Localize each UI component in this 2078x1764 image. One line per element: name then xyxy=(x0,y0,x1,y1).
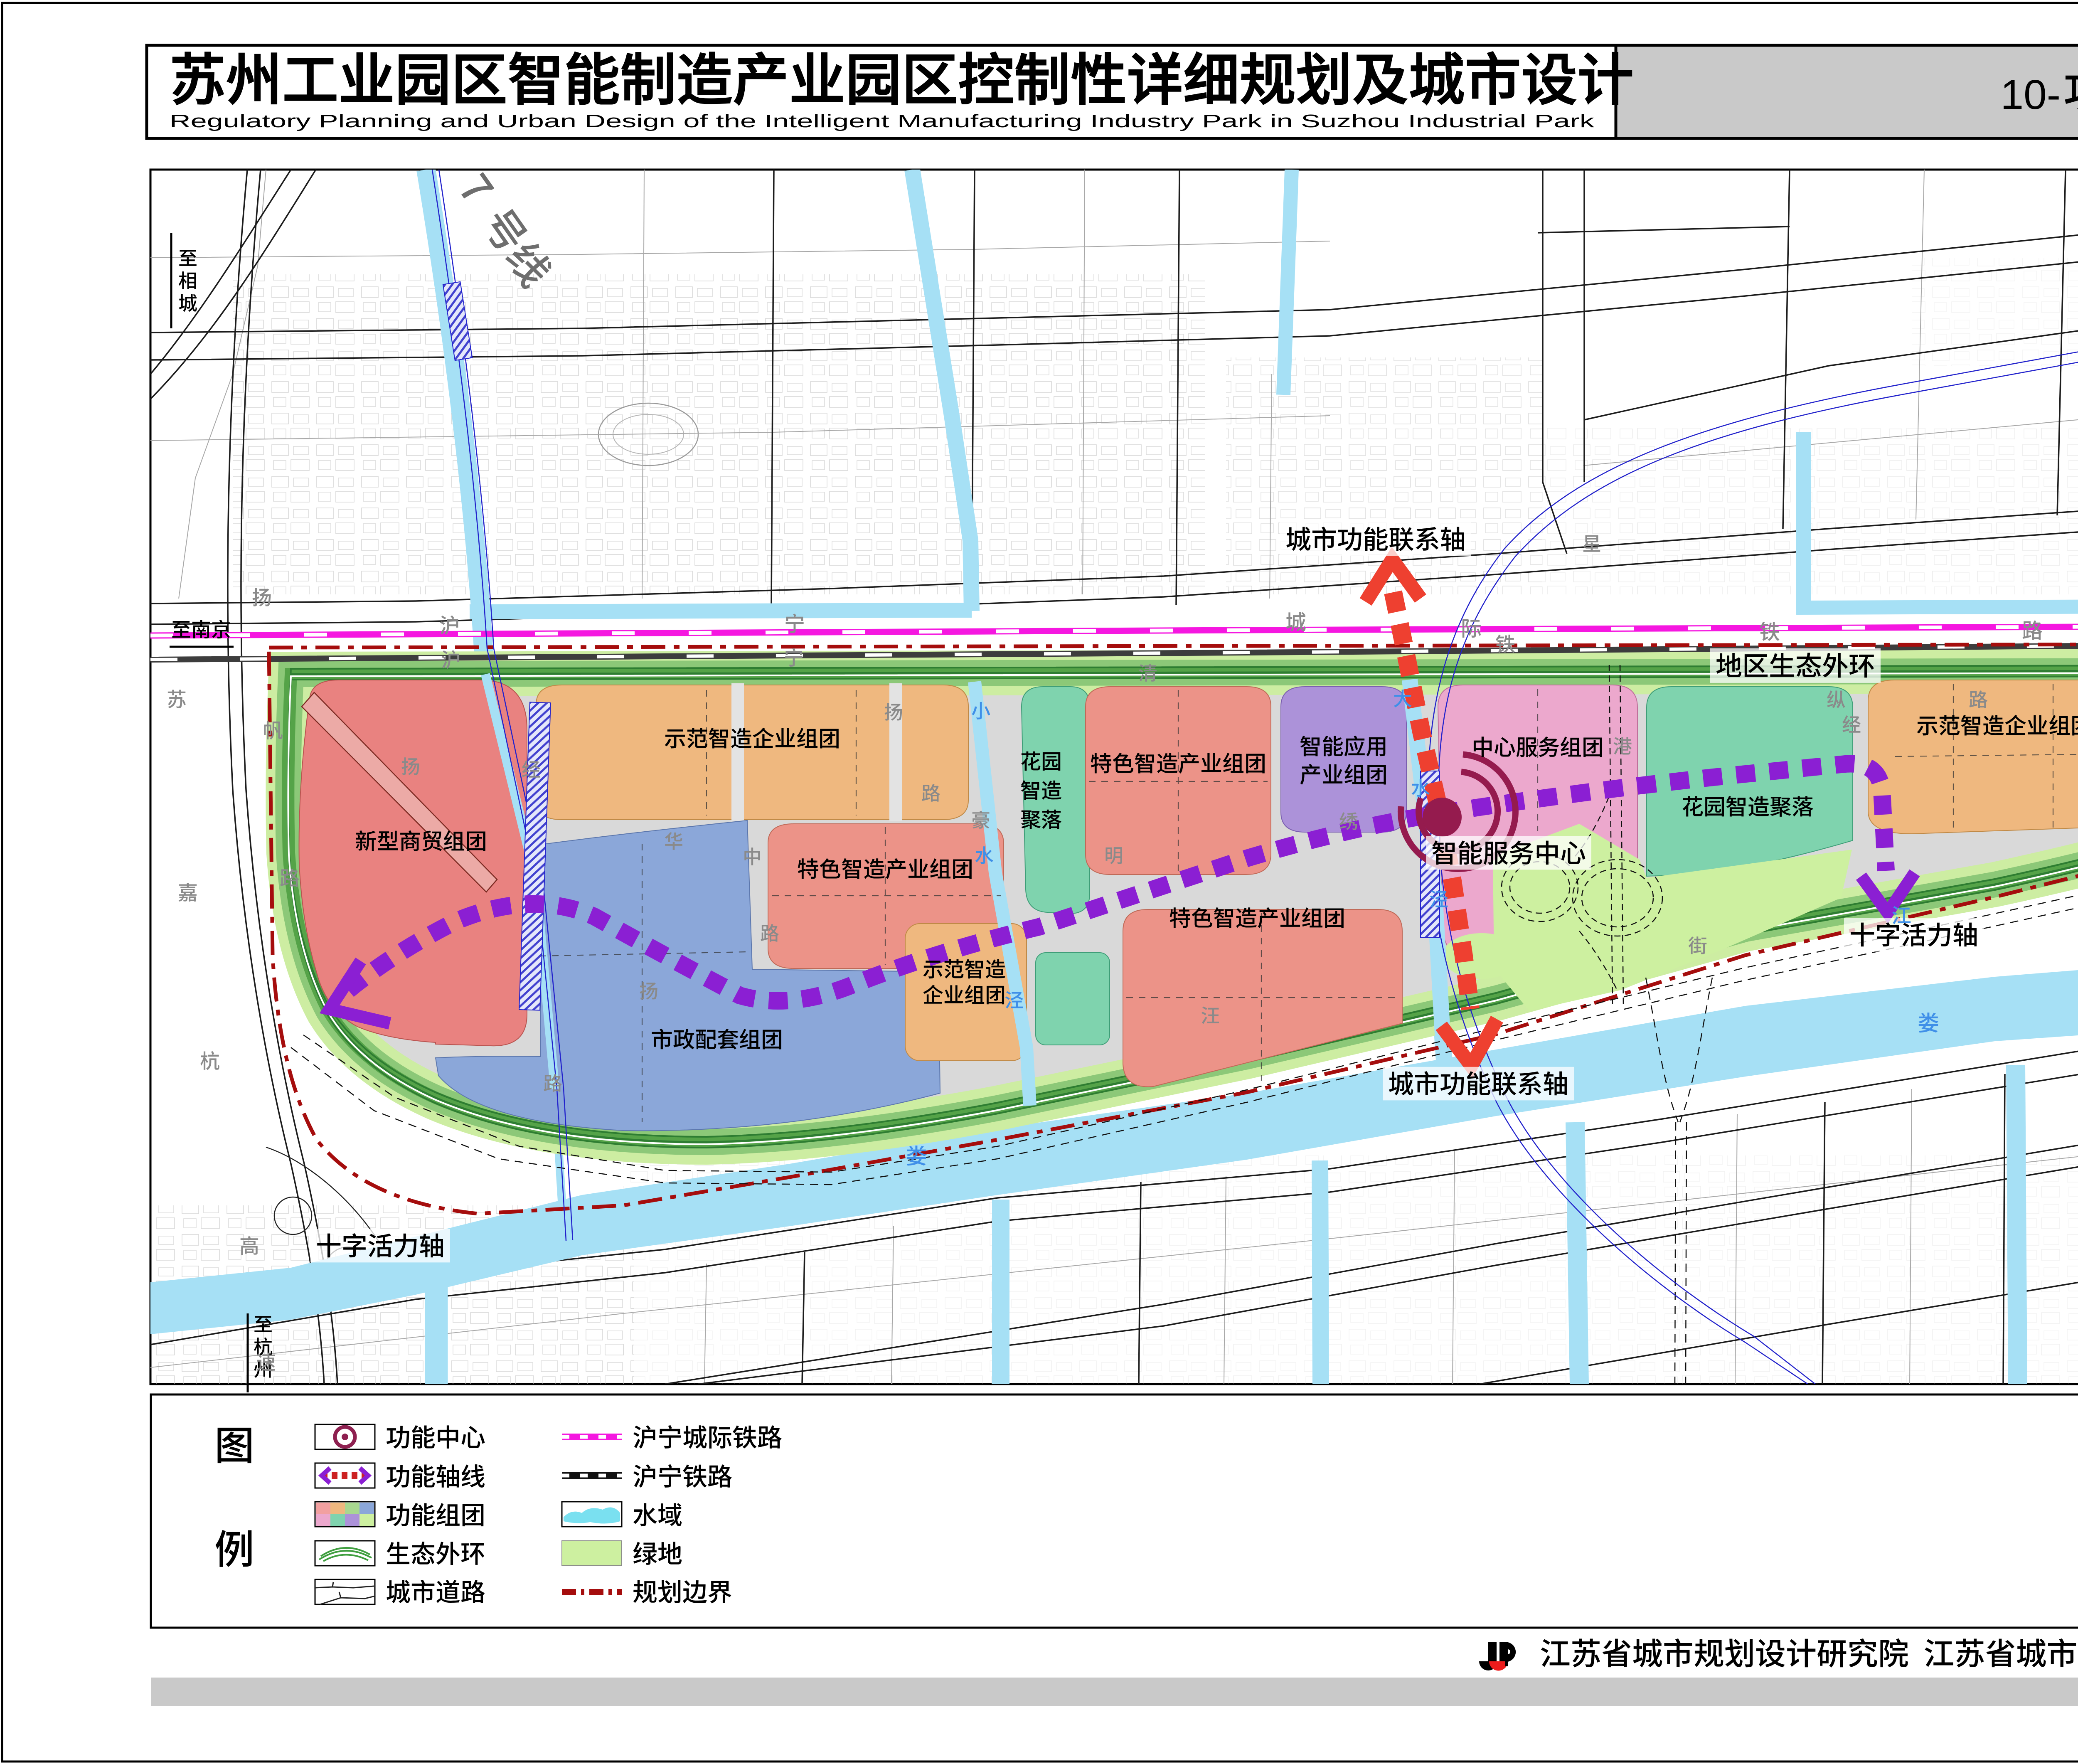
svg-text:10-: 10- xyxy=(2000,71,2061,118)
svg-text:Regulatory Planning and Urban: Regulatory Planning and Urban Design of … xyxy=(170,111,1595,131)
